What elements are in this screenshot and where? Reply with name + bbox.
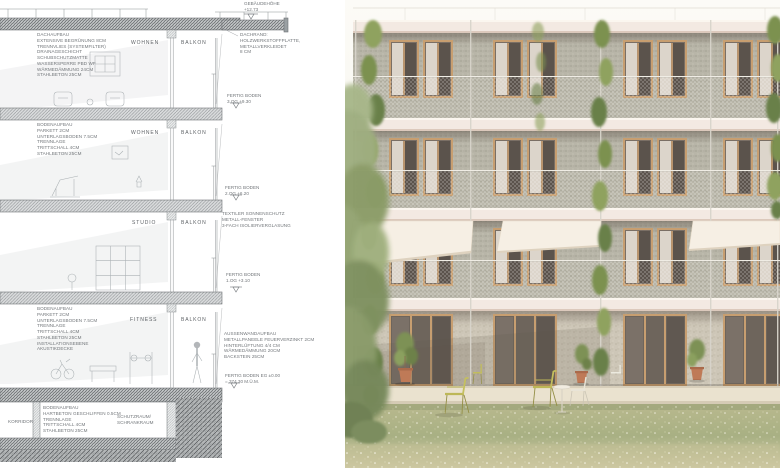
balkon-label: BALKON: [181, 130, 207, 136]
room-label-studio: STUDIO: [132, 220, 156, 226]
fascia-end: [284, 18, 288, 32]
callout-line: SCHRANKRAUM: [117, 420, 154, 426]
balkon-label: BALKON: [181, 220, 207, 226]
callout-line: 3-FACH ISOLIERVERGLASUNG: [222, 223, 291, 229]
room-label-fitness: FITNESS: [130, 317, 157, 323]
value: +12.73: [244, 7, 280, 13]
callout-line: HOLZWERKSTOFFPLATTE,: [240, 38, 300, 44]
balkon-label: BALKON: [181, 317, 207, 323]
room-label-wohnen-2og: WOHNEN: [131, 130, 159, 136]
room-label-wohnen-3og: WOHNEN: [131, 40, 159, 46]
roof-slab: [0, 18, 240, 30]
sunshade-callout: TEXTILER SONNENSCHUTZMETALL-FENSTER3-FAC…: [222, 211, 291, 228]
callout-line: HARTBETON GESCHLIFFEN 0.5CM: [43, 411, 121, 417]
schutzraum-label: SCHUTZRAUM/SCHRANKRAUM: [117, 414, 154, 426]
slab-basement: [0, 438, 176, 450]
callout-line: AKUSTIKDECKE: [37, 346, 97, 352]
floor-construction-callout: BODENAUFBAUPARKETT 2CMUNTERLAGSBODEN 7.5…: [37, 122, 97, 157]
roof-construction-callout: DACHAUFBAUEXTENSIVE BEGRÜNUNG 8CMTRENNVL…: [37, 32, 106, 78]
callout-line: 1.OG +3.10: [226, 278, 260, 284]
balkon-label: BALKON: [181, 40, 207, 46]
callout-line: EXTENSIVE BEGRÜNUNG 8CM: [37, 38, 106, 44]
callout-line: STAHLBETON 25CM: [43, 428, 121, 434]
level-marker-3og: FERTIG BODEN3.OG +9.30: [227, 93, 261, 105]
slab-1og: [0, 292, 222, 304]
level-marker-2og: FERTIG BODEN2.OG +6.20: [225, 185, 259, 197]
callout-line: = 374.30 M.Ü.M.: [225, 379, 280, 385]
building-height-label: GEBÄUDEHÖHE +12.73: [244, 1, 280, 13]
basement-wall: [167, 402, 176, 438]
exterior-wall-callout: AUSSENWANDAUFBAUMETALLPANEELE FEUERVERZI…: [224, 331, 314, 360]
page: { "palette": { "paper": "#ffffff", "line…: [0, 0, 780, 468]
callout-line: METALLPANEELE FEUERVERZINKT 2CM: [224, 337, 314, 343]
korridor-label: KORRIDOR: [8, 419, 33, 425]
callout-line: 8 CM: [240, 49, 300, 55]
floor-construction-callout-fitness: BODENAUFBAUPARKETT 2CMUNTERLAGSBODEN 7.5…: [37, 306, 97, 352]
callout-line: TEXTILER SONNENSCHUTZ: [222, 211, 291, 217]
slab-2og: [0, 200, 222, 212]
level-marker-eg: FERTIG BODEN EG ±0.00= 374.30 M.Ü.M.: [225, 373, 280, 385]
mesh-railings: [353, 76, 780, 298]
glass-door: [723, 314, 780, 386]
callout-line: 2.OG +6.20: [225, 191, 259, 197]
balcony-edge: [215, 38, 217, 388]
level-marker-1og: FERTIG BODEN1.OG +3.10: [226, 272, 260, 284]
callout-line: BACKSTEIN 25CM: [224, 354, 314, 360]
basement-wall: [33, 402, 40, 438]
slab-3og: [0, 108, 222, 120]
building-section-drawing: GEBÄUDEHÖHE +12.73 DACHAUFBAUEXTENSIVE B…: [0, 0, 345, 468]
rendering-canvas: [345, 0, 780, 468]
roof-edge-fascia: [222, 20, 286, 30]
callout-line: STAHLBETON 25CM: [37, 151, 97, 157]
callout-line: WASSERSPERRE PBD WF: [37, 61, 106, 67]
glass-door: [623, 314, 687, 386]
person-figure: [192, 342, 202, 383]
callout-line: SCHUTZRAUM/: [117, 414, 154, 420]
facade-rendering: [345, 0, 780, 468]
earth-hatch: [0, 450, 176, 462]
building-facade: [347, 20, 780, 386]
earth-hatch: [176, 398, 222, 458]
callout-line: 3.OG +9.30: [227, 99, 261, 105]
callout-line: STAHLBETON 25CM: [37, 72, 106, 78]
ground-floor-callout: BODENAUFBAUHARTBETON GESCHLIFFEN 0.5CMTR…: [43, 405, 121, 434]
roof-edge-callout: DACHRAND:HOLZWERKSTOFFPLATTE,METALLVERKL…: [240, 32, 300, 55]
foreground-grass: [345, 444, 780, 468]
